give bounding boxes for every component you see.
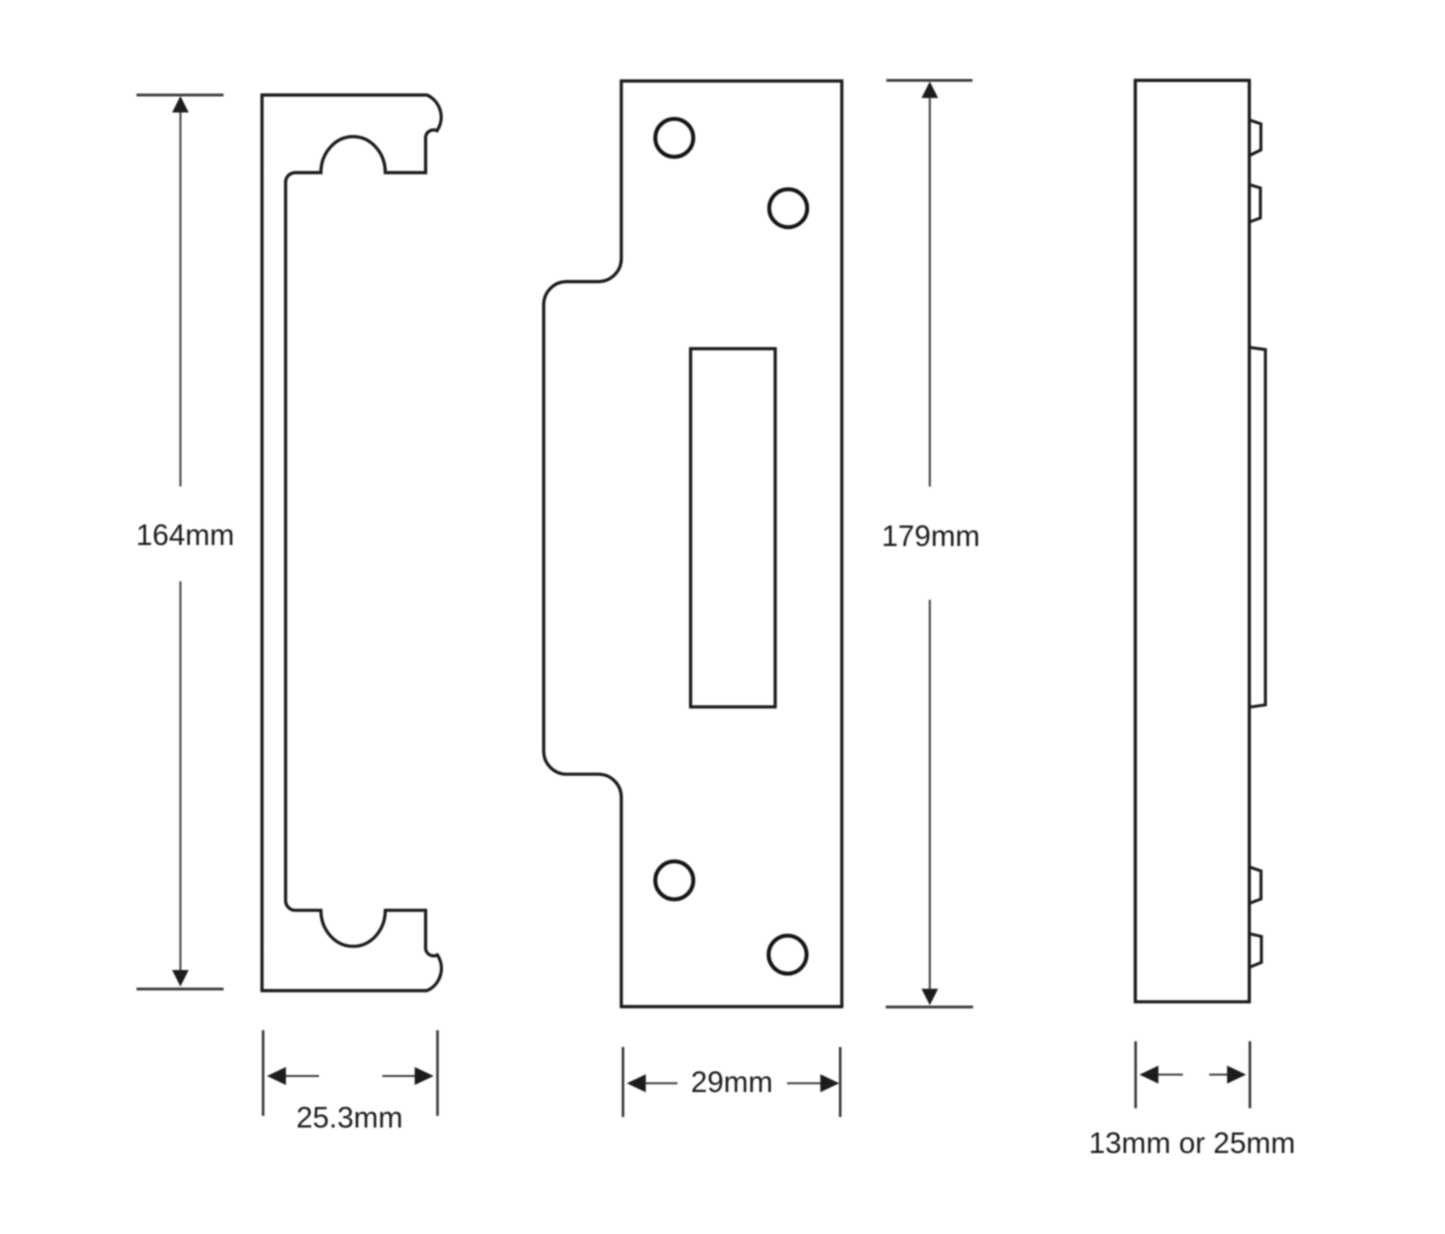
svg-text:25.3mm: 25.3mm	[296, 1102, 403, 1135]
svg-text:13mm or 25mm: 13mm or 25mm	[1089, 1127, 1296, 1160]
svg-text:164mm: 164mm	[136, 519, 234, 552]
svg-text:179mm: 179mm	[882, 520, 980, 553]
svg-text:29mm: 29mm	[691, 1066, 773, 1099]
